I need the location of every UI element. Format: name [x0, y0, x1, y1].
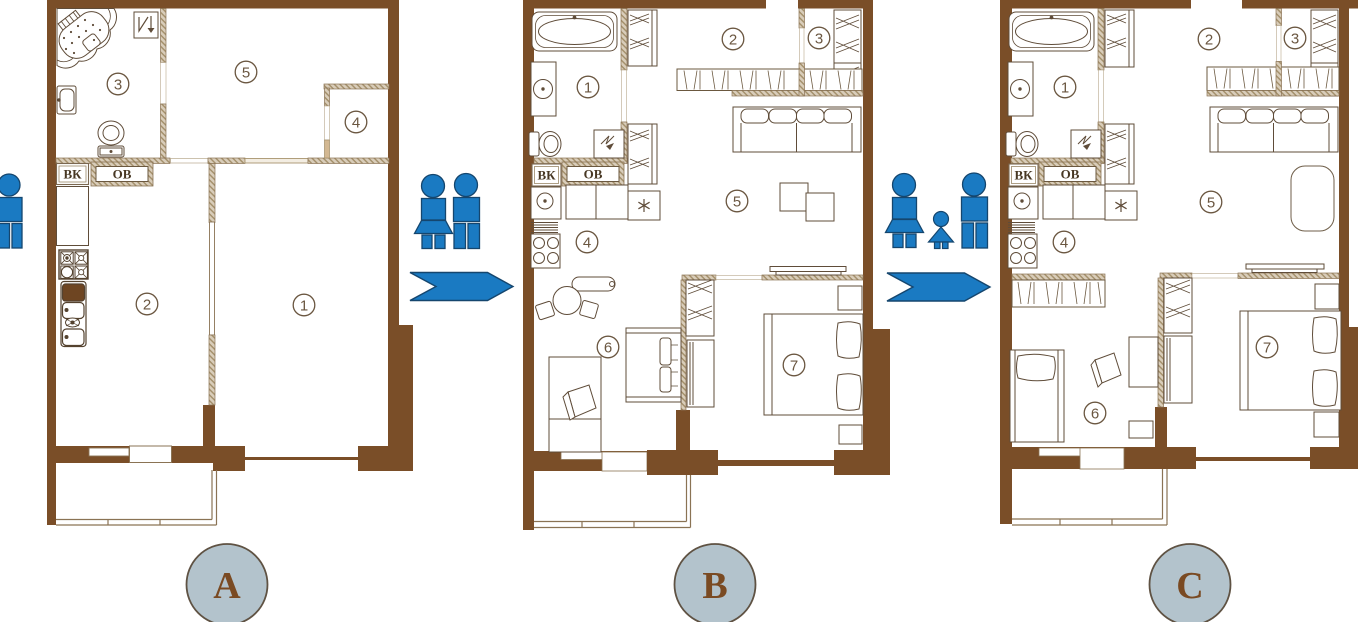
svg-text:ВК: ВК: [1014, 168, 1033, 183]
svg-text:ВК: ВК: [63, 167, 82, 182]
svg-text:1: 1: [1061, 80, 1069, 97]
svg-text:B: B: [702, 565, 727, 607]
svg-text:4: 4: [1060, 235, 1068, 252]
svg-text:4: 4: [352, 115, 360, 132]
svg-text:2: 2: [1205, 32, 1213, 49]
svg-text:ОВ: ОВ: [584, 167, 603, 182]
svg-text:5: 5: [733, 194, 741, 211]
svg-text:6: 6: [1091, 406, 1099, 423]
svg-text:2: 2: [729, 32, 737, 49]
svg-text:5: 5: [1207, 195, 1215, 212]
svg-text:ОВ: ОВ: [1061, 167, 1080, 182]
svg-text:6: 6: [604, 340, 612, 357]
svg-text:C: C: [1176, 565, 1203, 607]
svg-text:5: 5: [242, 65, 250, 82]
svg-text:3: 3: [1291, 31, 1299, 48]
svg-text:A: A: [213, 565, 241, 607]
svg-text:1: 1: [584, 80, 592, 97]
svg-text:3: 3: [114, 77, 122, 94]
svg-text:3: 3: [815, 31, 823, 48]
svg-text:ОВ: ОВ: [113, 167, 132, 182]
svg-text:2: 2: [143, 297, 151, 314]
svg-text:7: 7: [1263, 340, 1271, 357]
svg-text:7: 7: [790, 358, 798, 375]
svg-text:4: 4: [583, 235, 591, 252]
svg-text:1: 1: [300, 298, 308, 315]
svg-text:ВК: ВК: [537, 168, 556, 183]
